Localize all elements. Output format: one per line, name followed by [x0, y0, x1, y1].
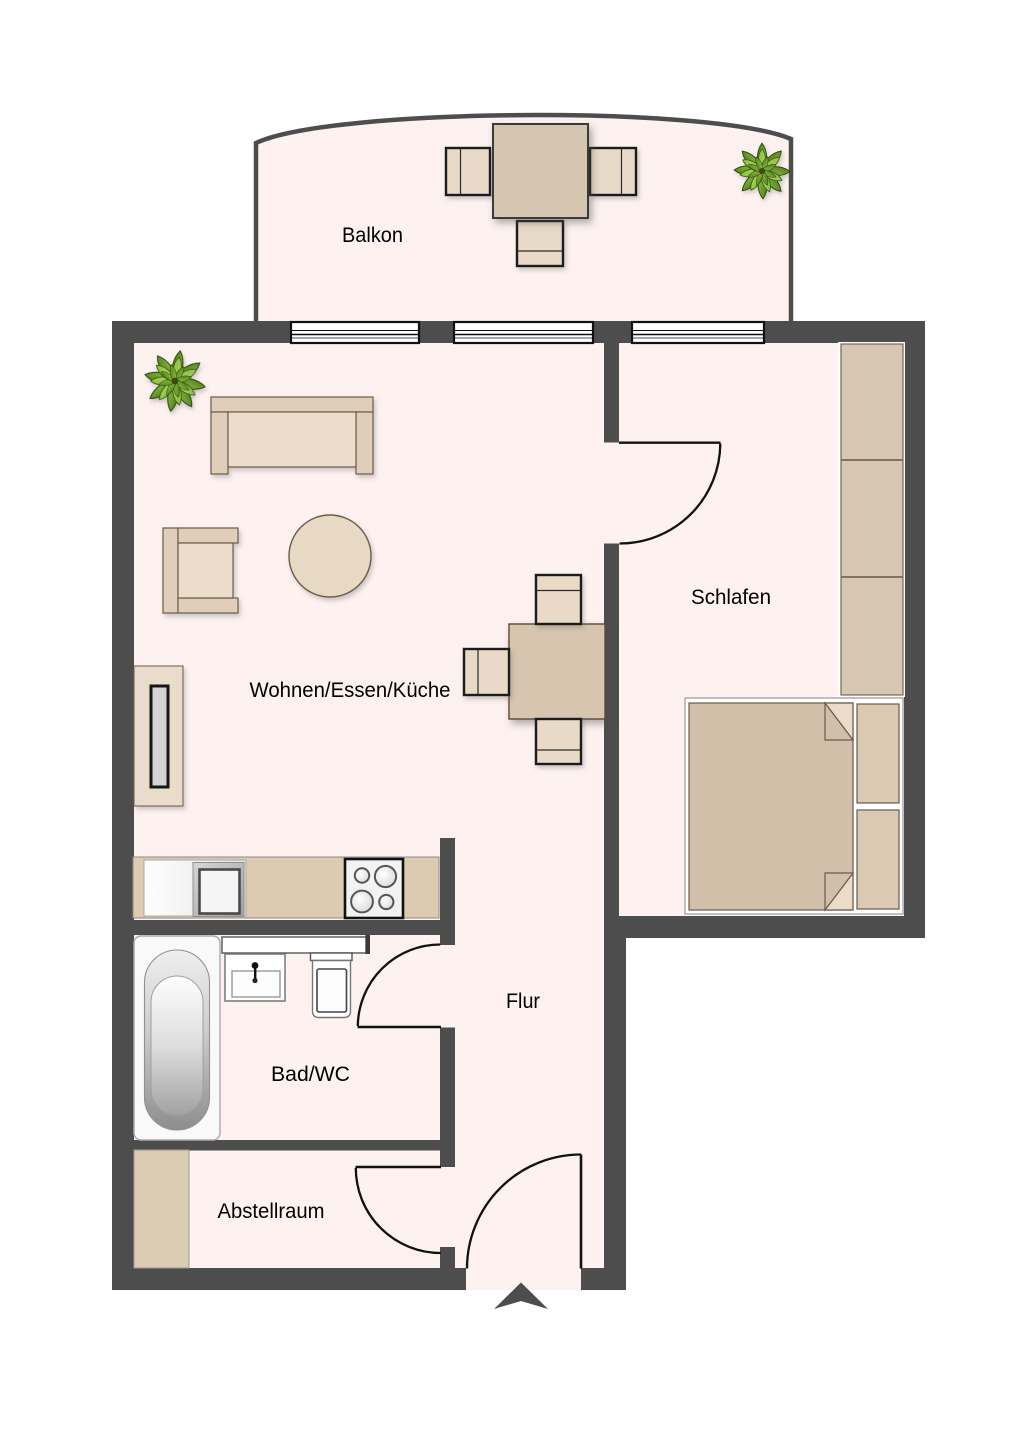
svg-text:Bad/WC: Bad/WC	[271, 1062, 350, 1086]
svg-text:Flur: Flur	[506, 989, 540, 1013]
svg-text:Schlafen: Schlafen	[691, 585, 771, 609]
svg-text:Abstellraum: Abstellraum	[218, 1199, 325, 1223]
svg-text:Wohnen/Essen/Küche: Wohnen/Essen/Küche	[250, 678, 451, 702]
svg-text:Balkon: Balkon	[342, 223, 403, 247]
